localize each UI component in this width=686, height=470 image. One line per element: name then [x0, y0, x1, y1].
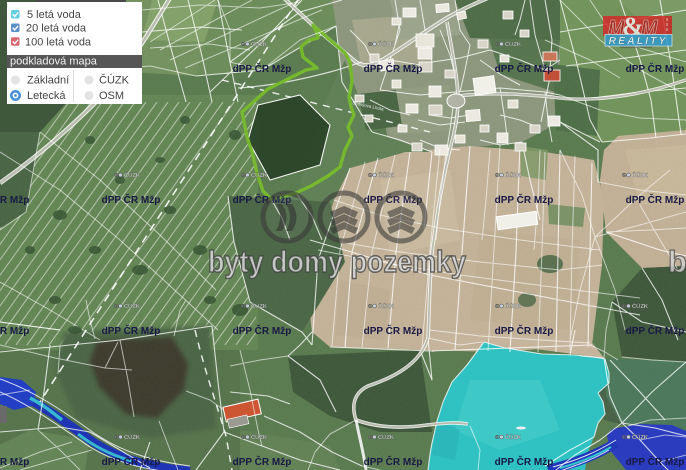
- svg-text:dPP ČR Mžp: dPP ČR Mžp: [495, 324, 554, 337]
- svg-text:dPP ČR Mžp: dPP ČR Mžp: [0, 324, 29, 337]
- svg-text:dPP ČR Mžp: dPP ČR Mžp: [364, 455, 423, 468]
- svg-text:©: ©: [495, 434, 500, 441]
- svg-text:ČÚZK: ČÚZK: [124, 172, 141, 179]
- svg-text:©: ©: [114, 172, 119, 179]
- svg-text:©: ©: [368, 172, 373, 179]
- svg-text:©: ©: [495, 172, 500, 179]
- svg-text:ČÚZK: ČÚZK: [505, 303, 522, 310]
- svg-text:dPP ČR Mžp: dPP ČR Mžp: [102, 455, 161, 468]
- svg-text:dPP ČR Mžp: dPP ČR Mžp: [233, 62, 292, 75]
- svg-text:ČÚZK: ČÚZK: [632, 172, 649, 179]
- svg-text:dPP ČR Mžp: dPP ČR Mžp: [233, 455, 292, 468]
- svg-text:©: ©: [622, 172, 627, 179]
- svg-text:ČÚZK: ČÚZK: [505, 172, 522, 179]
- svg-text:©: ©: [622, 303, 627, 310]
- svg-text:©: ©: [368, 303, 373, 310]
- svg-text:©: ©: [495, 303, 500, 310]
- svg-text:dPP ČR Mžp: dPP ČR Mžp: [626, 324, 685, 337]
- svg-text:©: ©: [368, 41, 373, 48]
- svg-text:ČÚZK: ČÚZK: [251, 41, 268, 48]
- svg-text:©: ©: [241, 41, 246, 48]
- svg-text:dPP ČR Mžp: dPP ČR Mžp: [364, 324, 423, 337]
- svg-text:ČÚZK: ČÚZK: [99, 74, 130, 87]
- svg-text:byty domy pozemky: byty domy pozemky: [208, 244, 467, 279]
- svg-text:REALITY: REALITY: [609, 35, 668, 47]
- svg-text:5 letá voda: 5 letá voda: [27, 9, 82, 21]
- svg-text:ČÚZK: ČÚZK: [632, 434, 649, 441]
- svg-text:dPP ČR Mžp: dPP ČR Mžp: [495, 193, 554, 206]
- svg-text:Základní: Základní: [27, 75, 69, 87]
- svg-text:©: ©: [622, 434, 627, 441]
- svg-text:©: ©: [241, 303, 246, 310]
- svg-text:ČÚZK: ČÚZK: [378, 303, 395, 310]
- svg-text:dPP ČR Mžp: dPP ČR Mžp: [364, 62, 423, 75]
- svg-text:OSM: OSM: [99, 90, 124, 102]
- svg-text:ČÚZK: ČÚZK: [632, 303, 649, 310]
- svg-text:byt: byt: [668, 244, 686, 279]
- svg-text:dPP ČR Mžp: dPP ČR Mžp: [0, 455, 29, 468]
- svg-text:©: ©: [241, 172, 246, 179]
- svg-text:ČÚZK: ČÚZK: [505, 41, 522, 48]
- svg-text:ČÚZK: ČÚZK: [251, 434, 268, 441]
- svg-text:ČÚZK: ČÚZK: [124, 303, 141, 310]
- svg-text:ČÚZK: ČÚZK: [378, 434, 395, 441]
- svg-text:©: ©: [495, 41, 500, 48]
- svg-text:100 letá voda: 100 letá voda: [25, 36, 92, 48]
- svg-text:podkladová mapa: podkladová mapa: [10, 56, 98, 68]
- svg-text:ČÚZK: ČÚZK: [251, 303, 268, 310]
- svg-text:ČÚZK: ČÚZK: [251, 172, 268, 179]
- svg-text:dPP ČR Mžp: dPP ČR Mžp: [102, 193, 161, 206]
- svg-text:ČÚZK: ČÚZK: [378, 41, 395, 48]
- svg-text:dPP ČR Mžp: dPP ČR Mžp: [626, 455, 685, 468]
- svg-text:©: ©: [114, 303, 119, 310]
- svg-text:dPP ČR Mžp: dPP ČR Mžp: [626, 193, 685, 206]
- svg-text:ČÚZK: ČÚZK: [505, 434, 522, 441]
- svg-text:dPP ČR Mžp: dPP ČR Mžp: [0, 193, 29, 206]
- svg-text:Letecká: Letecká: [27, 90, 66, 102]
- svg-text:©: ©: [368, 434, 373, 441]
- svg-text:dPP ČR Mžp: dPP ČR Mžp: [233, 324, 292, 337]
- svg-text:©: ©: [241, 434, 246, 441]
- svg-text:dPP ČR Mžp: dPP ČR Mžp: [102, 324, 161, 337]
- svg-text:dPP ČR Mžp: dPP ČR Mžp: [495, 455, 554, 468]
- svg-text:ČÚZK: ČÚZK: [378, 172, 395, 179]
- svg-text:©: ©: [114, 434, 119, 441]
- svg-text:dPP ČR Mžp: dPP ČR Mžp: [495, 62, 554, 75]
- svg-text:20 letá voda: 20 letá voda: [26, 23, 87, 35]
- svg-text:dPP ČR Mžp: dPP ČR Mžp: [626, 62, 685, 75]
- svg-text:ČÚZK: ČÚZK: [124, 434, 141, 441]
